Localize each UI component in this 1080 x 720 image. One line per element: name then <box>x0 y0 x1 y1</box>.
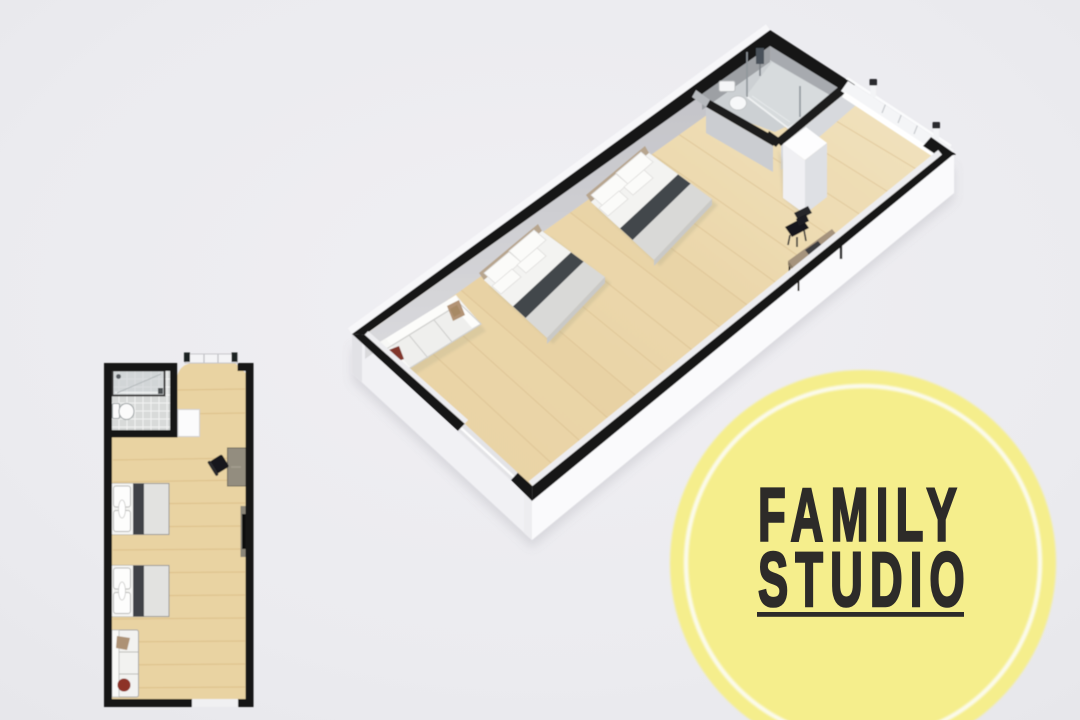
svg-text:STUDIO: STUDIO <box>758 538 972 623</box>
